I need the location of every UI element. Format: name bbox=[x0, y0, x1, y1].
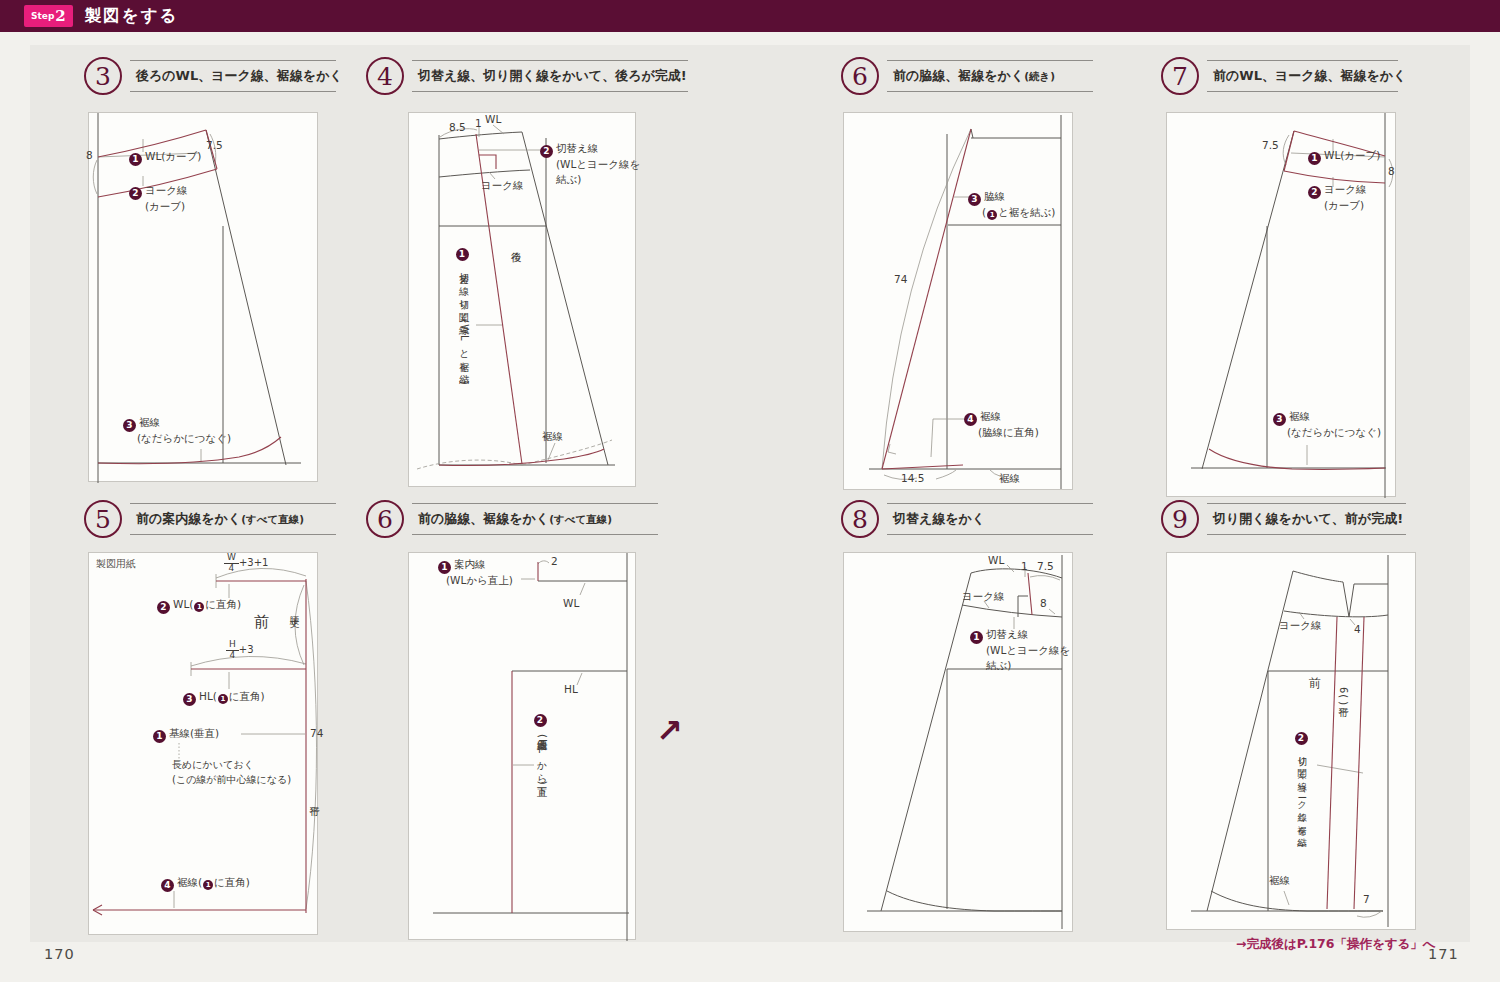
step-bullet: 2 bbox=[157, 601, 170, 614]
panel-5-title-text: 前の案内線をかく bbox=[136, 511, 241, 526]
step-bullet: 4 bbox=[161, 879, 174, 892]
step-bullet: 3 bbox=[123, 419, 136, 432]
dim-label: 1 bbox=[1021, 560, 1028, 573]
panel-4-number-circle: 4 bbox=[366, 57, 404, 95]
panel-5-header: 5 前の案内線をかく(すべて直線) bbox=[84, 503, 336, 535]
annotation-note: (この線が前中心線になる) bbox=[172, 774, 291, 786]
step-bullet: 3 bbox=[1273, 413, 1286, 426]
new-red-lines bbox=[1028, 573, 1032, 615]
panel-6l-header: 6 前の脇線、裾線をかく(すべて直線) bbox=[366, 503, 658, 535]
guide-lines bbox=[433, 553, 629, 941]
step-badge-label: Step bbox=[31, 11, 54, 21]
dim-label: 7 bbox=[1363, 893, 1370, 906]
step-bullet: 1 bbox=[456, 248, 469, 261]
front-yoke-drawing bbox=[1167, 113, 1397, 498]
panel-3-number-circle: 3 bbox=[84, 57, 122, 95]
hem-label: 裾線 bbox=[999, 472, 1020, 485]
annotation-note: (WLから直上) bbox=[446, 574, 513, 587]
new-red-lines bbox=[882, 129, 971, 469]
step-bullet: 4 bbox=[964, 413, 977, 426]
annotation-note: 結ぶ) bbox=[986, 659, 1011, 672]
paper-label: 製図用紙 bbox=[96, 558, 136, 570]
new-red-lines bbox=[98, 130, 281, 464]
dim-label: 74 bbox=[310, 727, 323, 740]
waist-length-label: 腰丈 bbox=[288, 609, 300, 611]
annotation-note: (カーブ) bbox=[145, 200, 185, 213]
step-bullet: 1 bbox=[1308, 152, 1321, 165]
front-switch-drawing bbox=[844, 553, 1074, 933]
leader-lines bbox=[513, 561, 585, 765]
dim-label: 8 bbox=[86, 149, 93, 162]
annotation-step: 3裾線 bbox=[123, 416, 160, 432]
annotation-note: (脇線に直角) bbox=[978, 426, 1039, 439]
wl-label: WL bbox=[563, 597, 579, 610]
step-bullet: 2 bbox=[540, 145, 553, 158]
panel-7-title-text: 前のWL、ヨーク線、裾線をかく bbox=[1213, 68, 1406, 83]
piece-label-front: 前 bbox=[254, 613, 271, 631]
hem-label: 裾線 bbox=[542, 430, 563, 443]
panel-6l-number-circle: 6 bbox=[366, 500, 404, 538]
step-bullet: 1 bbox=[438, 561, 451, 574]
step-bullet: 2 bbox=[129, 187, 142, 200]
panel-9-title-text: 切り開く線をかいて、前が完成! bbox=[1213, 511, 1403, 526]
dim-label: 7.5 bbox=[1037, 560, 1054, 573]
formula-label: W4+3+1 bbox=[224, 553, 268, 574]
front-side-guides-drawing bbox=[409, 553, 637, 941]
dim-label: 8 bbox=[1040, 597, 1047, 610]
page-number-right: 171 bbox=[1428, 946, 1459, 962]
annotation-note: (なだらかにつなぐ) bbox=[1287, 426, 1381, 439]
step-bullet: 1 bbox=[129, 153, 142, 166]
page-title: 製図をする bbox=[85, 5, 179, 27]
figure-front-yoke-wl: 7.5 8 1WL(カーブ) 2ヨーク線 (カーブ) 3裾線 (なだらかにつなぐ… bbox=[1166, 112, 1396, 497]
figure-back-complete: 8.5 1 WL 2切替え線 (WLとヨーク線を 結ぶ) ヨーク線 後ろ 1 切… bbox=[408, 112, 636, 487]
new-red-lines bbox=[1327, 617, 1364, 909]
wl-label: WL bbox=[485, 113, 501, 126]
annotation-note: (1と裾を結ぶ) bbox=[982, 206, 1055, 220]
panel-4-title-text: 切替え線、切り開く線をかいて、後ろが完成! bbox=[418, 68, 687, 83]
piece-label-front: 前 bbox=[1309, 676, 1322, 690]
ref-bullet: 1 bbox=[218, 694, 228, 704]
front-complete-drawing bbox=[1167, 553, 1417, 931]
figure-front-complete: ヨーク線 4 前 6(平行) 2 切り開く線(ヨーク線と裾を結ぶ) 裾線 7 bbox=[1166, 552, 1416, 930]
annotation-note: 長めにかいておく bbox=[172, 759, 254, 771]
annotation-step: 1WL(カーブ) bbox=[1308, 149, 1380, 165]
ref-bullet: 1 bbox=[203, 880, 213, 890]
annotation-note: (WLとヨーク線を bbox=[986, 644, 1070, 657]
annotation-step: 4裾線 bbox=[964, 410, 1001, 426]
figure-front-guides: 製図用紙 W4+3+1 2WL(1に直角) 前 腰丈 H4+3 3HL(1に直角… bbox=[88, 552, 318, 935]
continue-arrow-icon: ↗ bbox=[656, 712, 683, 750]
dim-label: 7.5 bbox=[206, 139, 223, 152]
panel-6r-title-text: 前の脇線、裾線をかく bbox=[893, 68, 1024, 83]
ref-bullet: 1 bbox=[194, 602, 204, 612]
annotation-step: 1 切替え線、切り開く線(WLと裾を結ぶ) bbox=[456, 248, 471, 386]
panel-7-title: 前のWL、ヨーク線、裾線をかく bbox=[1207, 60, 1398, 92]
annotation-step: 2WL(1に直角) bbox=[157, 598, 241, 614]
step-badge-number: 2 bbox=[55, 7, 65, 25]
step-bullet: 1 bbox=[970, 631, 983, 644]
panel-6r-title: 前の脇線、裾線をかく(続き) bbox=[887, 60, 1093, 92]
guide-lines bbox=[867, 555, 1062, 929]
annotation-step: 2ヨーク線 bbox=[129, 184, 188, 200]
new-red-lines bbox=[93, 579, 306, 915]
panel-5-title: 前の案内線をかく(すべて直線) bbox=[130, 503, 336, 535]
dim-label: 74 bbox=[894, 273, 907, 286]
annotation-step: 1WL(カーブ) bbox=[129, 150, 201, 166]
panel-6l-title-text: 前の脇線、裾線をかく bbox=[418, 511, 549, 526]
panel-5-number-circle: 5 bbox=[84, 500, 122, 538]
figure-front-side-hem: 3脇線 (1と裾を結ぶ) 74 4裾線 (脇線に直角) 14.5 裾線 bbox=[843, 112, 1073, 490]
dim-label: 7.5 bbox=[1262, 139, 1279, 152]
panel-8-number-circle: 8 bbox=[841, 500, 879, 538]
step-bullet: 1 bbox=[153, 730, 166, 743]
annotation-step: 1案内線 bbox=[438, 558, 486, 574]
hem-label: 裾線 bbox=[1269, 874, 1290, 887]
hl-label: HL bbox=[564, 683, 578, 696]
panel-6l-title: 前の脇線、裾線をかく(すべて直線) bbox=[412, 503, 658, 535]
panel-3-header: 3 後ろのWL、ヨーク線、裾線をかく bbox=[84, 60, 336, 92]
annotation-step: 2 切り開く線(ヨーク線と裾を結ぶ) bbox=[1295, 732, 1310, 848]
wl-label: WL bbox=[988, 554, 1004, 567]
annotation-note: (WLとヨーク線を bbox=[556, 158, 640, 171]
annotation-step: 1基線(垂直) bbox=[153, 727, 219, 743]
guide-lines bbox=[1191, 555, 1388, 927]
panel-7-header: 7 前のWL、ヨーク線、裾線をかく bbox=[1161, 60, 1398, 92]
panel-3-title: 後ろのWL、ヨーク線、裾線をかく bbox=[130, 60, 336, 92]
annotation-note: (カーブ) bbox=[1324, 199, 1364, 212]
panel-8-header: 8 切替え線をかく bbox=[841, 503, 1093, 535]
annotation-step: 2ヨーク線 bbox=[1308, 183, 1367, 199]
annotation-step: 3脇線 bbox=[968, 190, 1005, 206]
panel-4-header: 4 切替え線、切り開く線をかいて、後ろが完成! bbox=[366, 60, 688, 92]
front-side-hem-drawing bbox=[844, 113, 1074, 491]
panel-3-title-text: 後ろのWL、ヨーク線、裾線をかく bbox=[136, 68, 343, 83]
header-bar: Step 2 製図をする bbox=[0, 0, 1500, 32]
panel-9-title: 切り開く線をかいて、前が完成! bbox=[1207, 503, 1406, 535]
ref-bullet: 1 bbox=[987, 210, 997, 220]
step-badge: Step 2 bbox=[24, 5, 73, 27]
annotation-note: 結ぶ) bbox=[556, 173, 581, 186]
dim-label: 2 bbox=[551, 555, 558, 568]
book-spread-pattern-drafting: { "header": { "step_label": "Step", "ste… bbox=[0, 0, 1500, 982]
yoke-label: ヨーク線 bbox=[1279, 619, 1322, 632]
panel-6r-number-circle: 6 bbox=[841, 57, 879, 95]
panel-9-header: 9 切り開く線をかいて、前が完成! bbox=[1161, 503, 1406, 535]
annotation-step: 2切替え線 bbox=[540, 142, 598, 158]
step-bullet: 2 bbox=[1295, 732, 1308, 745]
step-bullet: 2 bbox=[534, 714, 547, 727]
panel-8-title-text: 切替え線をかく bbox=[893, 511, 985, 526]
dim-label: 4 bbox=[1354, 623, 1361, 636]
figure-front-switch-line: WL 1 7.5 ヨーク線 8 1切替え線 (WLとヨーク線を 結ぶ) bbox=[843, 552, 1073, 932]
parallel-label: 平行 bbox=[308, 798, 320, 800]
dim-label: 1 bbox=[475, 117, 482, 130]
dim-label-parallel: 6(平行) bbox=[1337, 687, 1349, 706]
annotation-note: (なだらかにつなぐ) bbox=[137, 432, 231, 445]
annotation-step: 4裾線(1に直角) bbox=[161, 876, 250, 892]
annotation-step: 2 案内線(HLから直下) bbox=[534, 714, 549, 786]
panel-4-title: 切替え線、切り開く線をかいて、後ろが完成! bbox=[412, 60, 688, 92]
annotation-step: 3裾線 bbox=[1273, 410, 1310, 426]
footer-continue-note: →完成後はP.176「操作をする」へ bbox=[1236, 936, 1436, 953]
formula-label: H4+3 bbox=[226, 640, 254, 661]
figure-front-side-guides: 1案内線 (WLから直上) 2 WL HL 2 案内線(HLから直下) bbox=[408, 552, 636, 940]
guide-lines bbox=[1191, 113, 1386, 498]
panel-7-number-circle: 7 bbox=[1161, 57, 1199, 95]
yoke-label: ヨーク線 bbox=[481, 179, 524, 192]
annotation-step: 1切替え線 bbox=[970, 628, 1028, 644]
annotation-step: 3HL(1に直角) bbox=[183, 690, 265, 706]
dim-label: 8 bbox=[1388, 165, 1395, 178]
step-bullet: 2 bbox=[1308, 186, 1321, 199]
page-number-left: 170 bbox=[44, 946, 75, 962]
panel-9-number-circle: 9 bbox=[1161, 500, 1199, 538]
piece-label-back: 後ろ bbox=[510, 243, 523, 257]
dim-label: 14.5 bbox=[901, 472, 924, 485]
panel-6r-header: 6 前の脇線、裾線をかく(続き) bbox=[841, 60, 1093, 92]
dim-label: 8.5 bbox=[449, 121, 466, 134]
step-bullet: 3 bbox=[183, 693, 196, 706]
step-bullet: 3 bbox=[968, 193, 981, 206]
figure-back-yoke-wl: 8 7.5 1WL(カーブ) 2ヨーク線 (カーブ) 3裾線 (なだらかにつなぐ… bbox=[88, 112, 318, 482]
panel-8-title: 切替え線をかく bbox=[887, 503, 1093, 535]
yoke-label: ヨーク線 bbox=[962, 590, 1005, 603]
